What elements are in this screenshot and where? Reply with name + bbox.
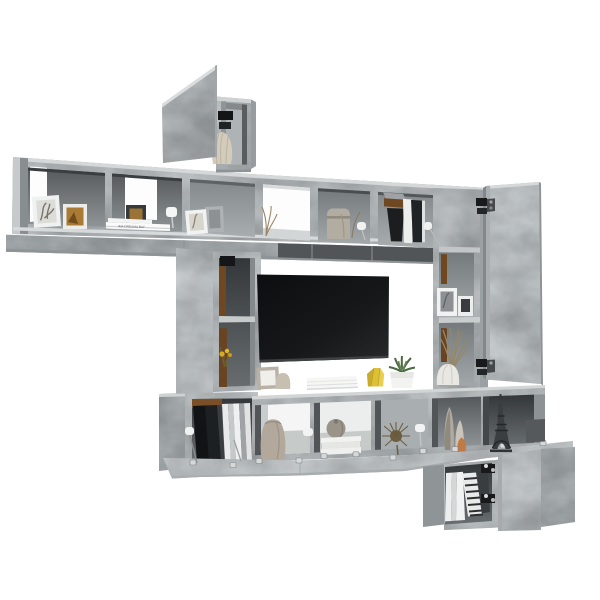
svg-text:IMA DREAMA BAY: IMA DREAMA BAY: [118, 224, 146, 229]
